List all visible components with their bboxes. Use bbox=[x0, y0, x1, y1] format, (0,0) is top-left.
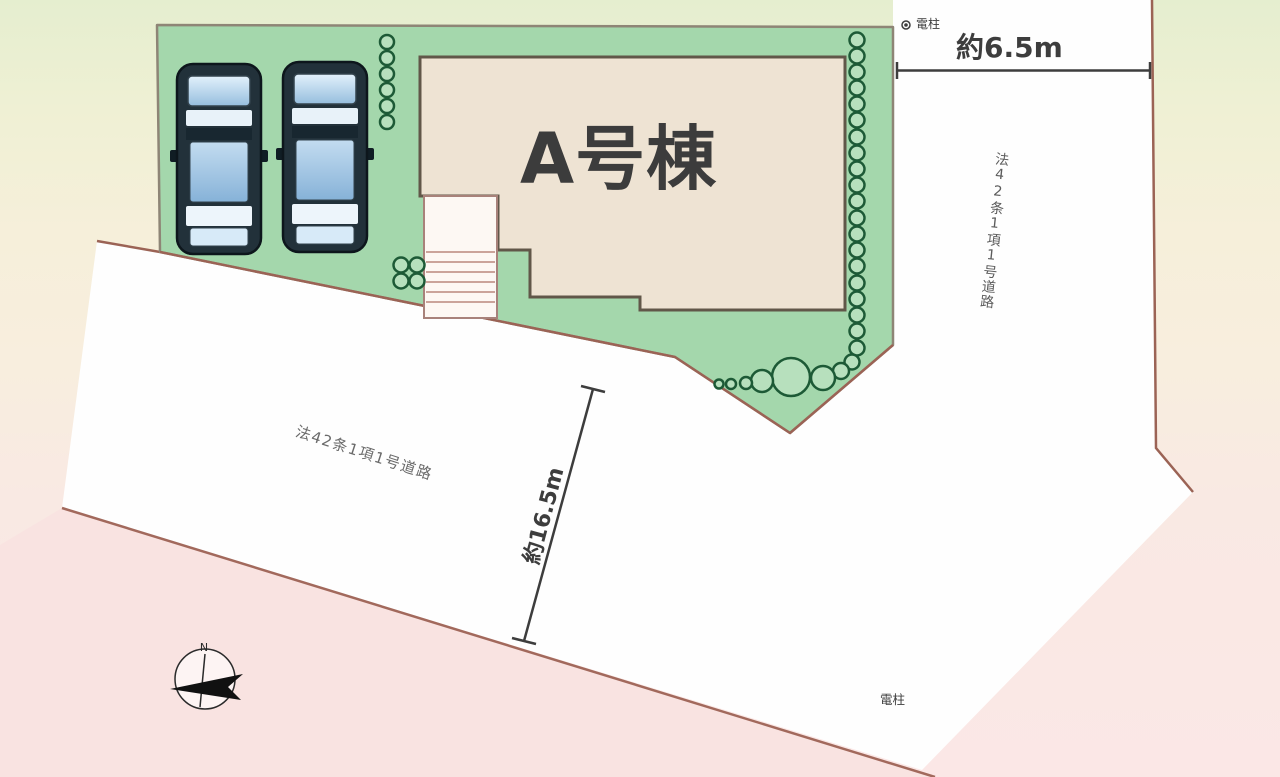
car-1 bbox=[170, 64, 268, 254]
site-plan-drawing: N bbox=[0, 0, 1280, 777]
car-2 bbox=[276, 62, 374, 252]
building-a-label: A号棟 bbox=[520, 124, 717, 194]
utility-pole-top-label: 電柱 bbox=[916, 18, 940, 30]
entrance-stairs bbox=[424, 196, 497, 318]
utility-pole-icon bbox=[902, 21, 910, 29]
top-dimension-label: 約6.5m bbox=[956, 34, 1063, 62]
east-road-boundary-line bbox=[1152, 0, 1193, 492]
site-plan-canvas: N A号棟 約6.5m 電柱 法42条1項1号道路 法42条1項1号道路 約16… bbox=[0, 0, 1280, 777]
utility-pole-bottom-label: 電柱 bbox=[880, 694, 905, 707]
compass-north-letter: N bbox=[200, 641, 208, 654]
